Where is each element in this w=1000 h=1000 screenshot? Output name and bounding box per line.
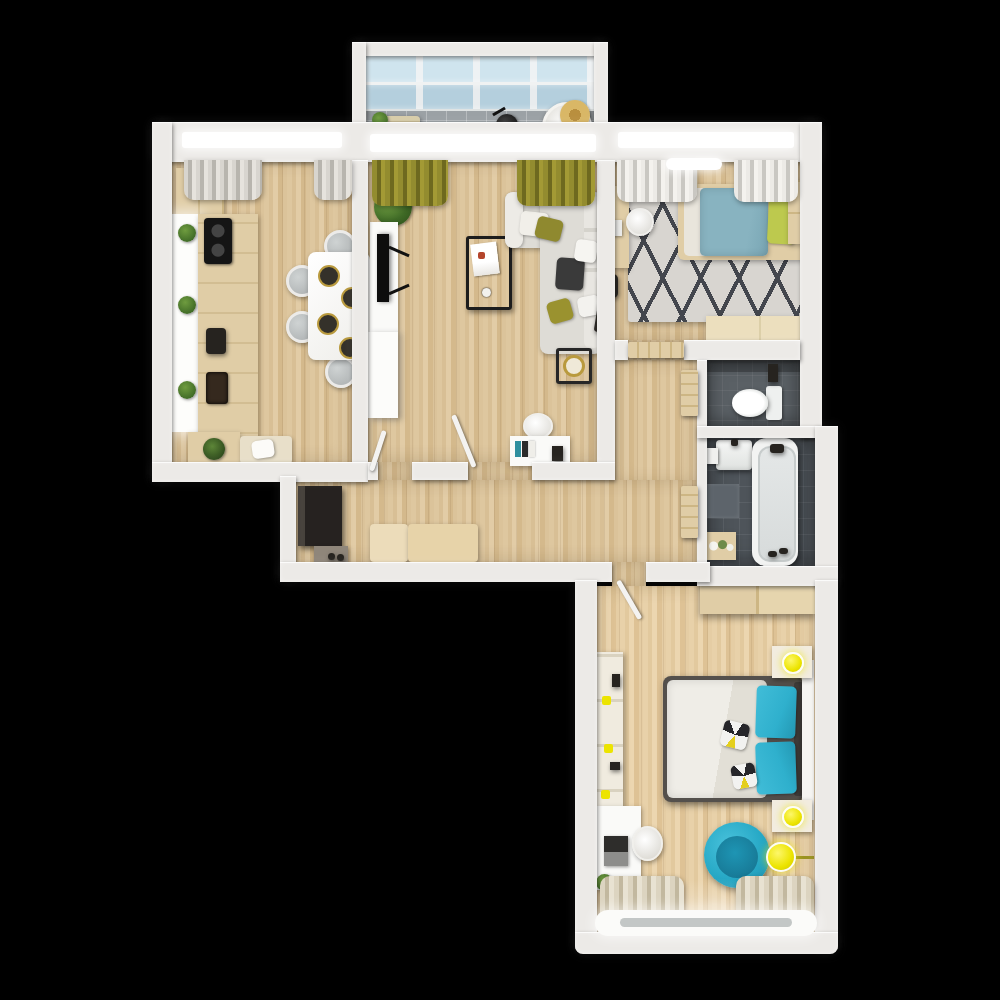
- wc-door: [681, 370, 698, 416]
- shelf-dark-item-1: [612, 674, 620, 687]
- hall-shoe-2: [337, 554, 344, 561]
- pattern-pillow-2: [730, 762, 758, 790]
- kitchen-window: [182, 132, 342, 148]
- sofa-dark-throw: [555, 257, 585, 291]
- kids-bottom-wall-right: [684, 340, 800, 360]
- teal-pillow-2: [755, 741, 797, 794]
- living-balcony-window: [370, 134, 596, 152]
- coffee-machine: [206, 328, 226, 354]
- apartment-wall-left: [152, 122, 172, 482]
- floor-plan-scene: [0, 0, 1000, 1000]
- bath-slipper-2: [779, 548, 788, 554]
- wc-plumbing: [768, 364, 778, 382]
- desk-book-2: [522, 441, 528, 457]
- toilet-tank: [766, 386, 782, 420]
- bedroom-wall-left: [575, 580, 597, 952]
- magazine-red-dot: [478, 252, 485, 259]
- kitchen-window-countertop: [172, 214, 200, 432]
- kids-desk-chair: [626, 208, 654, 236]
- hallway-floor: [296, 480, 697, 562]
- kitchen-living-divider: [352, 160, 368, 464]
- bath-wall-right: [815, 426, 838, 588]
- living-kids-divider: [597, 160, 615, 462]
- kids-bottom-wall-left-stub: [615, 340, 628, 360]
- living-curtain-left: [372, 160, 448, 206]
- sofa-white-pillow-1: [573, 238, 598, 263]
- coffee-table-cup: [482, 288, 491, 297]
- hall-wall-bottom-right: [646, 562, 710, 582]
- cooktop: [204, 218, 232, 264]
- egg-chair-seat: [716, 836, 758, 878]
- master-laptop: [604, 836, 628, 866]
- kitchen-curtain-left: [184, 160, 262, 200]
- wc-bath-divider: [697, 426, 822, 438]
- bench-plant-pot: [203, 438, 225, 460]
- place-setting-3: [317, 313, 339, 335]
- bath-slipper-1: [768, 551, 777, 557]
- floor-lamp: [766, 842, 796, 872]
- living-wall-bottom-stub-2: [412, 462, 468, 480]
- teal-pillow-1: [755, 685, 797, 738]
- kids-curtain-right: [734, 160, 798, 202]
- floor-clock-dial: [563, 355, 585, 377]
- kitchen-wall-bottom: [152, 462, 368, 482]
- balcony-wall-top: [352, 42, 608, 56]
- kids-window: [618, 132, 794, 148]
- nightstand-lamp-top: [782, 652, 804, 674]
- master-desk-chair: [632, 826, 663, 861]
- bathroom-washbox: [706, 448, 718, 464]
- desk-frame: [552, 446, 563, 461]
- bathtub-faucet: [770, 444, 784, 453]
- toilet-bowl: [732, 389, 768, 417]
- master-wall-panel: [802, 660, 814, 820]
- shelf-yellow-decor-3: [601, 790, 610, 799]
- desk-book-1: [515, 441, 521, 457]
- sink-faucet: [731, 439, 738, 446]
- kids-room-door: [628, 342, 684, 358]
- shelf-yellow-decor-1: [602, 696, 611, 705]
- living-wall-bottom-stub-3: [532, 462, 615, 480]
- wc-wall-shade: [707, 360, 800, 372]
- bench-pillow: [251, 439, 275, 460]
- hall-dark-wardrobe: [298, 486, 342, 546]
- bath-mat: [707, 484, 739, 518]
- desk-book-3: [529, 441, 535, 457]
- shelf-dark-item-2: [610, 762, 620, 770]
- living-curtain-right: [517, 160, 595, 206]
- corridor-wet-wall: [697, 360, 707, 566]
- hall-wall-bottom-left: [280, 562, 612, 582]
- kitchen-plant-2: [178, 296, 196, 314]
- doorway-floor-living-1: [378, 462, 412, 480]
- shelf-yellow-decor-2: [604, 744, 613, 753]
- bedroom-wall-right: [815, 580, 838, 952]
- bathroom-shelf: [706, 532, 736, 560]
- kitchen-plant-1: [178, 224, 196, 242]
- hall-bench-right: [408, 524, 478, 562]
- coffee-table-magazine: [470, 242, 500, 277]
- kitchen-plant-3: [178, 381, 196, 399]
- balcony-skylight-row-upper: [366, 56, 594, 85]
- kitchen-curtain-right: [314, 160, 352, 200]
- bathtub-inner: [758, 446, 796, 562]
- kitchen-sink: [206, 372, 228, 404]
- bedroom-window-glass: [620, 918, 792, 927]
- kids-ceiling-light: [666, 158, 722, 170]
- hall-shoe-1: [328, 553, 335, 560]
- place-setting-1: [318, 265, 340, 287]
- hall-bench-left: [370, 524, 408, 562]
- living-tall-cabinet: [368, 332, 398, 418]
- bathroom-door: [681, 486, 698, 538]
- nightstand-lamp-bottom: [782, 806, 804, 828]
- apartment-wall-right-upper: [800, 122, 822, 438]
